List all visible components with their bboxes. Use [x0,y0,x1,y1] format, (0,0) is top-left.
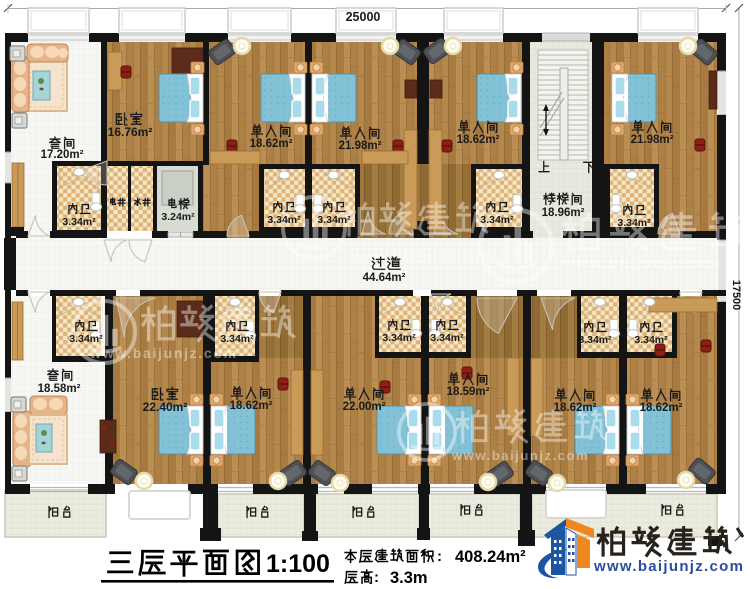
svg-text::: : [437,548,442,565]
svg-text:18.59m²: 18.59m² [447,386,490,398]
svg-text:18.62m²: 18.62m² [554,402,597,414]
svg-text:www.baijunjz.com: www.baijunjz.com [562,255,721,272]
svg-text:3.3m: 3.3m [390,569,428,587]
svg-text:3.24m²: 3.24m² [161,211,195,223]
svg-text:18.62m²: 18.62m² [250,138,293,150]
svg-text:3.34m²: 3.34m² [430,332,464,344]
svg-text:21.98m²: 21.98m² [631,134,674,146]
svg-text:22.40m²: 22.40m² [143,400,188,414]
svg-text:3.34m²: 3.34m² [220,333,254,345]
svg-text:18.58m²: 18.58m² [38,383,81,395]
svg-text:17.20m²: 17.20m² [41,149,84,161]
svg-text:3.34m²: 3.34m² [617,217,651,229]
svg-text:21.98m²: 21.98m² [339,140,382,152]
svg-text::: : [374,569,379,586]
svg-text:22.00m²: 22.00m² [343,401,386,413]
svg-text:3.34m²: 3.34m² [578,334,612,346]
svg-text:3.34m²: 3.34m² [634,334,668,346]
svg-text:3.34m²: 3.34m² [267,214,301,226]
svg-text:18.62m²: 18.62m² [640,402,683,414]
svg-text:408.24m²: 408.24m² [455,548,526,566]
svg-text:www.baijunjz.com: www.baijunjz.com [351,248,494,263]
svg-text:16.76m²: 16.76m² [108,125,153,139]
svg-text:3.34m²: 3.34m² [382,332,416,344]
svg-text:3.34m²: 3.34m² [62,216,96,228]
svg-text:44.64m²: 44.64m² [363,272,406,284]
svg-text:18.96m²: 18.96m² [542,207,585,219]
svg-text:17500: 17500 [730,280,742,311]
svg-text:www.baijunjz.com: www.baijunjz.com [593,558,744,575]
svg-text:www.baijunjz.com: www.baijunjz.com [89,345,238,361]
svg-text:www.baijunjz.com: www.baijunjz.com [451,448,589,463]
svg-text:3.34m²: 3.34m² [317,214,351,226]
svg-text:3.34m²: 3.34m² [480,214,514,226]
svg-text:3.34m²: 3.34m² [69,333,103,345]
svg-text:18.62m²: 18.62m² [230,400,273,412]
svg-text:25000: 25000 [346,10,381,24]
svg-text:1:100: 1:100 [266,550,330,578]
svg-text:18.62m²: 18.62m² [457,134,500,146]
